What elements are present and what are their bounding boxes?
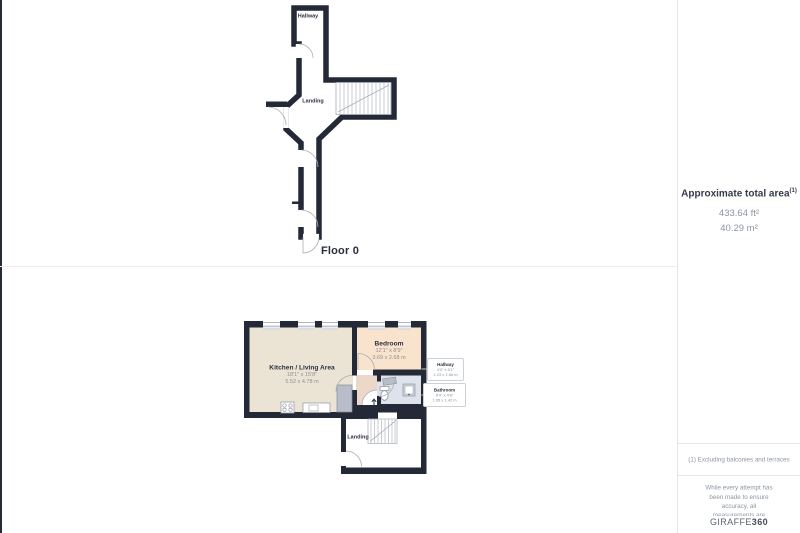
room-label-landing-floor0: Landing xyxy=(302,98,323,104)
total-area-imperial: 433.64 ft² xyxy=(678,206,800,221)
room-label-hallway-floor0: Hallway xyxy=(298,13,318,19)
floor-1-stairs xyxy=(368,419,397,444)
kitchen-fixtures xyxy=(281,402,330,413)
brand-logo: GIRAFFE360 xyxy=(678,517,800,527)
floor-divider xyxy=(0,266,677,267)
brand-suffix: 360 xyxy=(752,517,768,527)
footnote: (1) Excluding balconies and terraces xyxy=(678,443,800,475)
room-label-bedroom: Bedroom 12'1" x 8'9" 3.69 x 2.68 m xyxy=(372,340,405,361)
hallway-dimension-box: Hallway 4'0" x 5'1" 1.23 x 1.56 m xyxy=(427,358,464,381)
floor-0-title: Floor 0 xyxy=(321,245,359,257)
brand-name: GIRAFFE xyxy=(710,517,752,527)
floor-0-plan xyxy=(260,0,405,262)
floor-0-stairs xyxy=(336,83,391,115)
floor-plan-viewer: Hallway Landing Floor 0 xyxy=(0,0,800,533)
total-area-block: Approximate total area(1) 433.64 ft² 40.… xyxy=(678,188,800,236)
plan-area: Hallway Landing Floor 0 xyxy=(0,0,677,533)
bathroom-dimension-box: Bathroom 6'4" x 4'8" 1.95 x 1.42 m xyxy=(423,383,466,407)
sidebar: Approximate total area(1) 433.64 ft² 40.… xyxy=(677,0,800,533)
total-area-metric: 40.29 m² xyxy=(678,221,800,236)
disclaimer: While every attempt has been made to ens… xyxy=(678,475,800,516)
room-label-kitchen: Kitchen / Living Area 18'1" x 15'8" 5.52… xyxy=(269,364,334,385)
footnote-ref: (1) xyxy=(790,188,797,194)
room-label-landing-floor1: Landing xyxy=(347,434,368,440)
total-area-title: Approximate total area(1) xyxy=(678,188,800,199)
closet xyxy=(337,385,352,412)
floor-0-walls xyxy=(286,8,394,237)
